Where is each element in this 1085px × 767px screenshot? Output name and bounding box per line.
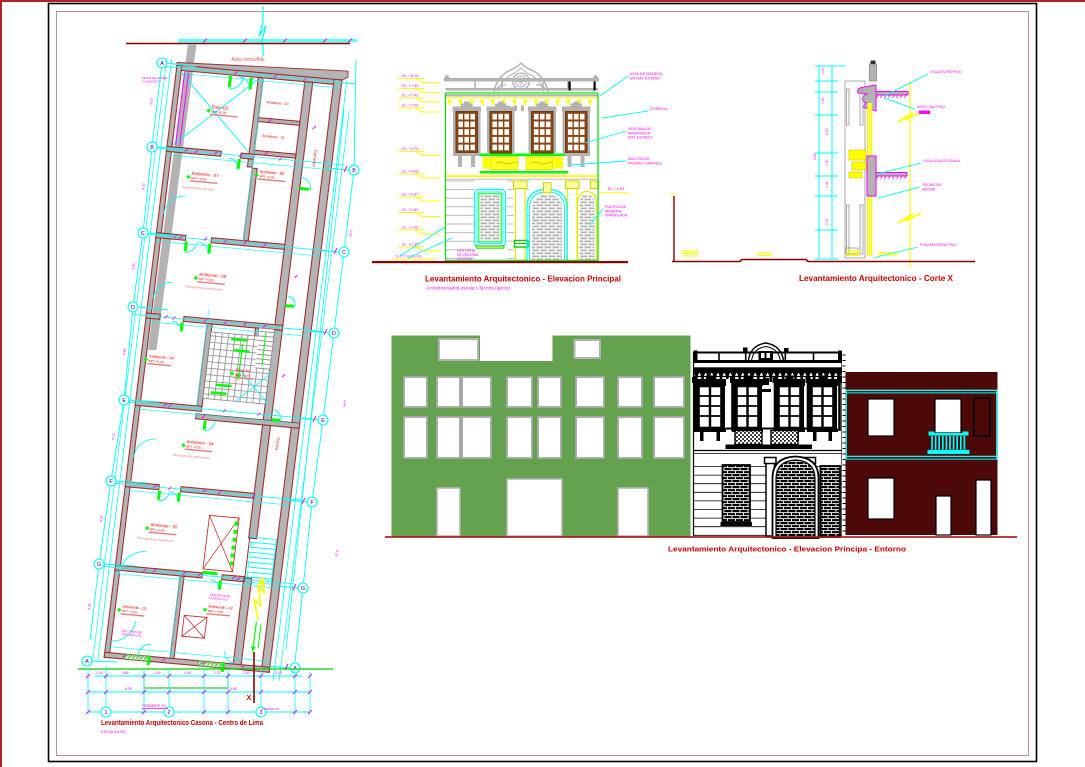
svg-text:E: E	[321, 418, 325, 424]
svg-text:Levantamiento Arquitectonico -: Levantamiento Arquitectonico - Corte X	[799, 274, 954, 283]
svg-text:3.30: 3.30	[243, 671, 250, 675]
svg-text:4.40: 4.40	[342, 400, 347, 407]
svg-text:EL. +7.42: EL. +7.42	[402, 94, 418, 98]
svg-text:VIGA LONGITUDINAL: VIGA LONGITUDINAL	[923, 159, 961, 163]
svg-text:ESCALA 1/50: ESCALA 1/50	[101, 729, 126, 734]
svg-text:C: C	[342, 250, 346, 256]
svg-text:NIVEL 2do PISO: NIVEL 2do PISO	[917, 105, 945, 109]
svg-text:Levantamiento Arquitectonico -: Levantamiento Arquitectonico - Elevacion…	[668, 547, 906, 554]
svg-text:Area Inmovible: Area Inmovible	[231, 57, 265, 63]
svg-text:EL. +4.75: EL. +4.75	[402, 147, 418, 151]
svg-text:4.45: 4.45	[184, 671, 191, 675]
svg-text:EL. +8.15: EL. +8.15	[402, 74, 418, 78]
svg-text:C: C	[141, 231, 145, 237]
svg-text:1.20: 1.20	[821, 67, 825, 74]
svg-text:MAL ESTADO: MAL ESTADO	[628, 136, 652, 140]
svg-text:4.90: 4.90	[87, 603, 92, 610]
svg-text:PENDIENTE: PENDIENTE	[262, 707, 279, 711]
svg-text:6.20: 6.20	[334, 550, 339, 557]
svg-text:APANELADA: APANELADA	[605, 214, 628, 218]
svg-text:G: G	[301, 586, 305, 592]
svg-text:Levantamiento Arquitectonico -: Levantamiento Arquitectonico - Elevacion…	[425, 275, 621, 284]
svg-text:D: D	[332, 331, 336, 337]
svg-text:COLINDANTE: COLINDANTE	[142, 79, 161, 83]
svg-text:0.40: 0.40	[825, 181, 829, 188]
svg-text:PISO MADERA PINO: PISO MADERA PINO	[920, 243, 957, 247]
svg-text:5.65: 5.65	[348, 230, 353, 237]
svg-text:A: A	[160, 61, 164, 67]
svg-text:2.15: 2.15	[275, 671, 282, 675]
svg-text:G: G	[97, 562, 101, 568]
svg-text:PENDIENTE 2%: PENDIENTE 2%	[142, 704, 166, 708]
svg-text:VIGA ENTREPISO: VIGA ENTREPISO	[930, 70, 962, 74]
svg-text:EL. +7.90: EL. +7.90	[402, 84, 418, 88]
svg-text:2.30: 2.30	[825, 218, 829, 225]
svg-text:EL. +3.37: EL. +3.37	[402, 193, 418, 197]
svg-text:4.30: 4.30	[99, 515, 104, 522]
svg-text:EL. +2.80: EL. +2.80	[402, 208, 418, 212]
svg-text:0.80: 0.80	[821, 97, 825, 104]
svg-text:EL. +4.08: EL. +4.08	[402, 170, 418, 174]
svg-text:1.40: 1.40	[154, 671, 161, 675]
svg-text:CORNISA: CORNISA	[650, 107, 668, 111]
svg-text:Levantamiento Arquitectonico C: Levantamiento Arquitectonico Casona - Ce…	[101, 718, 264, 727]
svg-text:LM.: LM.	[670, 191, 677, 196]
svg-text:ADOBE: ADOBE	[922, 187, 936, 191]
svg-text:X: X	[247, 695, 252, 702]
svg-text:4.85: 4.85	[122, 671, 129, 675]
svg-text:EN MAL ESTADO: EN MAL ESTADO	[630, 76, 660, 80]
svg-text:5.65: 5.65	[230, 687, 237, 691]
svg-text:4.20: 4.20	[141, 183, 146, 190]
svg-text:4.15: 4.15	[111, 433, 116, 440]
svg-text:B: B	[352, 168, 356, 174]
svg-text:2.50: 2.50	[825, 128, 829, 135]
svg-text:Acondicionados escala 1:50 mts: Acondicionados escala 1:50 mts (aprox)	[426, 286, 511, 291]
svg-text:V-01/V-02: V-01/V-02	[457, 257, 472, 261]
svg-text:3.85: 3.85	[131, 263, 136, 270]
svg-text:1.20: 1.20	[214, 671, 221, 675]
svg-text:3.50: 3.50	[149, 98, 154, 105]
svg-text:B: B	[150, 145, 154, 151]
svg-text:4.60: 4.60	[122, 348, 127, 355]
svg-text:EL. +0.63: EL. +0.63	[608, 187, 624, 191]
svg-text:1: 1	[105, 710, 108, 716]
svg-text:EL. +1.95: EL. +1.95	[402, 226, 418, 230]
svg-text:6.80: 6.80	[813, 153, 817, 160]
svg-text:FIERRO FORJADO: FIERRO FORJADO	[628, 161, 662, 165]
svg-text:D: D	[131, 305, 135, 311]
svg-text:6.35: 6.35	[125, 687, 132, 691]
svg-text:2: 2	[168, 710, 171, 716]
svg-text:1.50: 1.50	[825, 159, 829, 166]
svg-text:E: E	[122, 398, 126, 404]
svg-text:EL. +7.00: EL. +7.00	[402, 104, 418, 108]
svg-text:1.50: 1.50	[96, 671, 103, 675]
svg-text:A: A	[85, 659, 89, 665]
